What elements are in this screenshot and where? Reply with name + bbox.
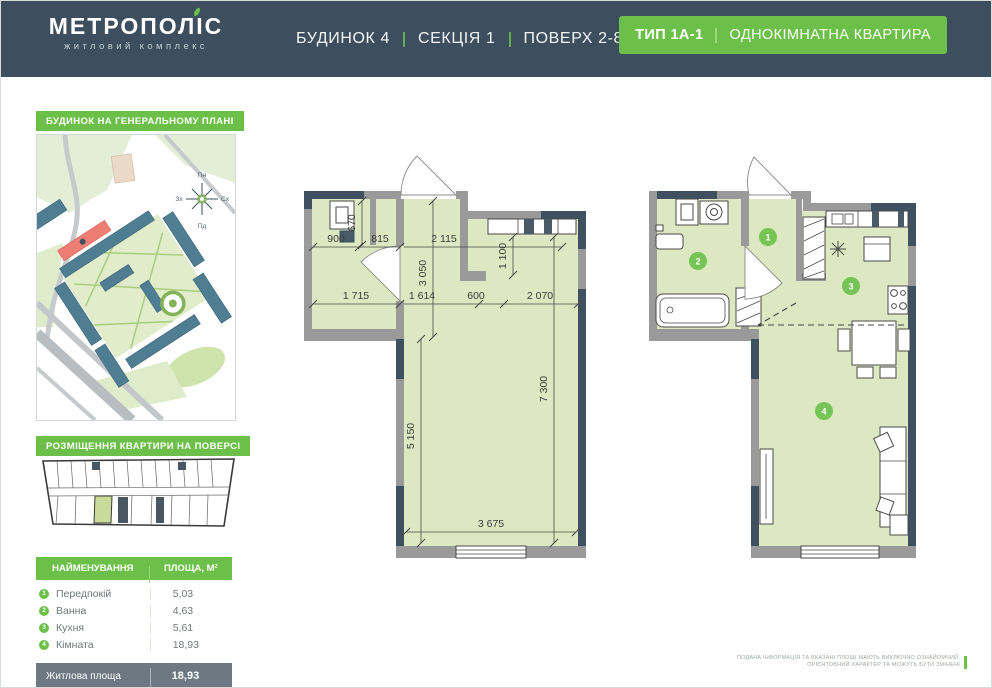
- compass-south: Пд: [198, 223, 207, 230]
- siteplan-section-label: БУДИНОК НА ГЕНЕРАЛЬНОМУ ПЛАНІ: [36, 111, 244, 131]
- room-name: Кімната: [56, 639, 150, 651]
- summary-label: Житлова площа: [36, 671, 150, 682]
- floor-strip: [32, 457, 250, 531]
- floor-label: ПОВЕРХ 2-8: [524, 30, 623, 48]
- table-row: 2 Ванна 4,63: [36, 602, 232, 619]
- dim-815: 815: [371, 233, 389, 245]
- disclaimer-line2: ОРІЄНТОВНИЙ ХАРАКТЕР ТА МОЖУТЬ БУТИ ЗМІН…: [737, 662, 960, 669]
- room-marker-4: 4: [821, 407, 826, 417]
- separator: [509, 32, 511, 47]
- disclaimer-line1: ПОДАНА ІНФОРМАЦІЯ ТА ВКАЗАНІ ПЛОЩІ МАЮТЬ…: [737, 655, 960, 662]
- room-area: 5,61: [150, 622, 232, 634]
- summary-value: 18,93: [150, 670, 232, 682]
- room-marker-3: 3: [848, 282, 853, 292]
- logo-title: МЕТРОПОЛІС: [49, 13, 223, 39]
- compass-north: Пн: [198, 172, 207, 179]
- separator: [150, 668, 151, 688]
- floor-location-section-label: РОЗМІЩЕННЯ КВАРТИРИ НА ПОВЕРСІ: [36, 436, 250, 456]
- room-name: Кухня: [56, 622, 150, 634]
- area-table: НАЙМЕНУВАННЯ ПЛОЩА, М² 1 Передпокій 5,03…: [36, 557, 232, 688]
- header-area: ПЛОЩА, М²: [150, 563, 232, 574]
- table-body: 1 Передпокій 5,03 2 Ванна 4,63 3 Кухня 5…: [36, 580, 232, 657]
- siteplan-svg: Пн Пд Сх Зх: [37, 135, 235, 420]
- dim-1715: 1 715: [343, 290, 369, 302]
- table-row: 1 Передпокій 5,03: [36, 585, 232, 602]
- table-row: 3 Кухня 5,61: [36, 619, 232, 636]
- room-name: Ванна: [56, 605, 150, 617]
- apartment-type-badge: ТИП 1А-1 ОДНОКІМНАТНА КВАРТИРА: [619, 16, 947, 54]
- dim-3675: 3 675: [478, 518, 504, 530]
- separator: [715, 28, 717, 43]
- room-area: 5,03: [150, 588, 232, 600]
- disclaimer-accent-bar: [964, 656, 967, 669]
- room-name: Передпокій: [56, 588, 150, 600]
- logo: МЕТРОПОЛІС житловий комплекс: [31, 13, 241, 52]
- dim-900: 900: [327, 233, 345, 245]
- room-number-badge: 2: [39, 606, 49, 616]
- summary-row: Загальна площа 34,20: [36, 684, 232, 688]
- dim-3050: 3 050: [417, 260, 429, 286]
- logo-subtitle: житловий комплекс: [31, 41, 241, 52]
- dim-2115: 2 115: [431, 233, 457, 245]
- room-marker-2: 2: [695, 257, 700, 267]
- dim-600: 600: [467, 290, 485, 302]
- room-marker-1: 1: [765, 233, 770, 243]
- floor-strip-svg: [32, 457, 250, 531]
- dim-1614: 1 614: [409, 290, 435, 302]
- dim-2070: 2 070: [527, 290, 553, 302]
- siteplan-map: Пн Пд Сх Зх: [36, 134, 236, 421]
- room-number-badge: 1: [39, 589, 49, 599]
- floorplan-page: МЕТРОПОЛІС житловий комплекс БУДИНОК 4 С…: [0, 0, 992, 688]
- dim-7300: 7 300: [538, 376, 550, 402]
- dim-1100: 1 100: [497, 243, 509, 269]
- room-number-badge: 4: [39, 640, 49, 650]
- compass-east: Сх: [221, 196, 230, 203]
- apartment-floor: [312, 199, 578, 546]
- room-area: 4,63: [150, 605, 232, 617]
- table-row: 4 Кімната 18,93: [36, 636, 232, 653]
- type-code: ТИП 1А-1: [635, 27, 703, 43]
- separator: [403, 32, 405, 47]
- room-number-badge: 3: [39, 623, 49, 633]
- building-info: БУДИНОК 4 СЕКЦІЯ 1 ПОВЕРХ 2-8: [296, 1, 623, 77]
- dimensioned-floorplan: 900 815 2 115 670 3 050 1 100 1 715 1 61…: [296, 151, 646, 566]
- summary-row: Житлова площа 18,93: [36, 668, 232, 684]
- logo-title-text: МЕТРОПОЛІС: [49, 13, 223, 39]
- disclaimer: ПОДАНА ІНФОРМАЦІЯ ТА ВКАЗАНІ ПЛОЩІ МАЮТЬ…: [737, 655, 967, 669]
- header-bar: МЕТРОПОЛІС житловий комплекс БУДИНОК 4 С…: [1, 1, 991, 77]
- table-summary: Житлова площа 18,93 Загальна площа 34,20: [36, 663, 232, 688]
- dim-5150: 5 150: [405, 423, 417, 449]
- room-area: 18,93: [150, 639, 232, 651]
- type-description: ОДНОКІМНАТНА КВАРТИРА: [729, 27, 931, 43]
- highlighted-unit: [94, 496, 112, 523]
- section-label: СЕКЦІЯ 1: [418, 30, 496, 48]
- table-header: НАЙМЕНУВАННЯ ПЛОЩА, М²: [36, 557, 232, 580]
- dim-670: 670: [346, 214, 358, 232]
- building-label: БУДИНОК 4: [296, 30, 390, 48]
- header-name: НАЙМЕНУВАННЯ: [36, 563, 150, 574]
- compass-west: Зх: [175, 196, 183, 203]
- furnished-floorplan: 1 2 3 4: [646, 151, 946, 566]
